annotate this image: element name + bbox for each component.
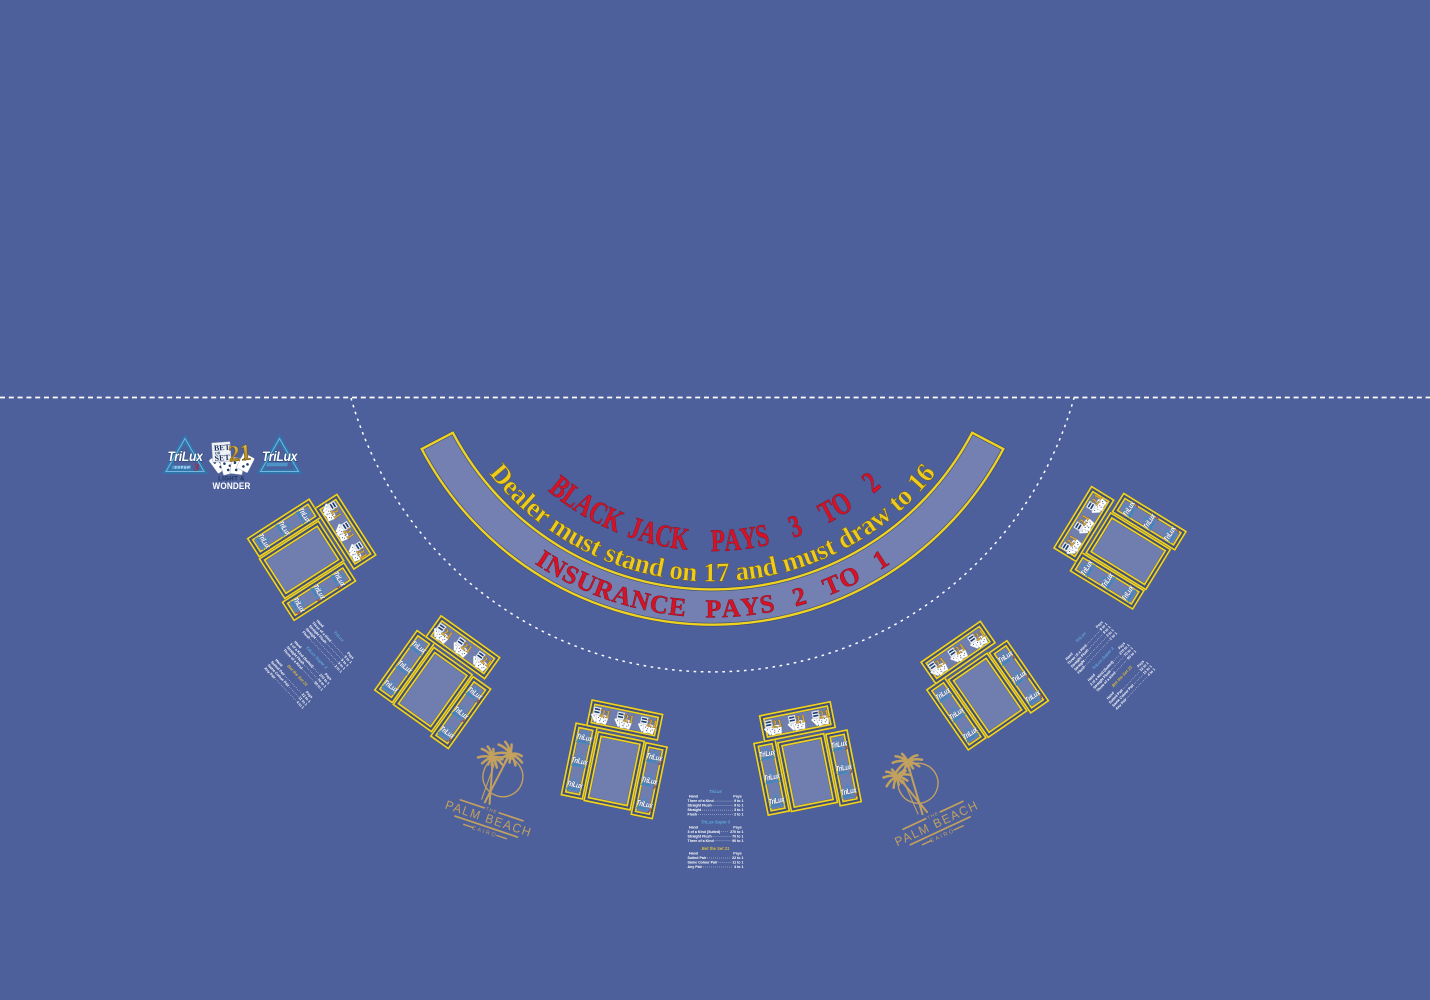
svg-text:P: P — [705, 594, 721, 623]
svg-text:7: 7 — [716, 557, 731, 587]
svg-text:E: E — [667, 591, 687, 622]
svg-text:A: A — [721, 593, 742, 623]
svg-text:n: n — [681, 556, 698, 587]
